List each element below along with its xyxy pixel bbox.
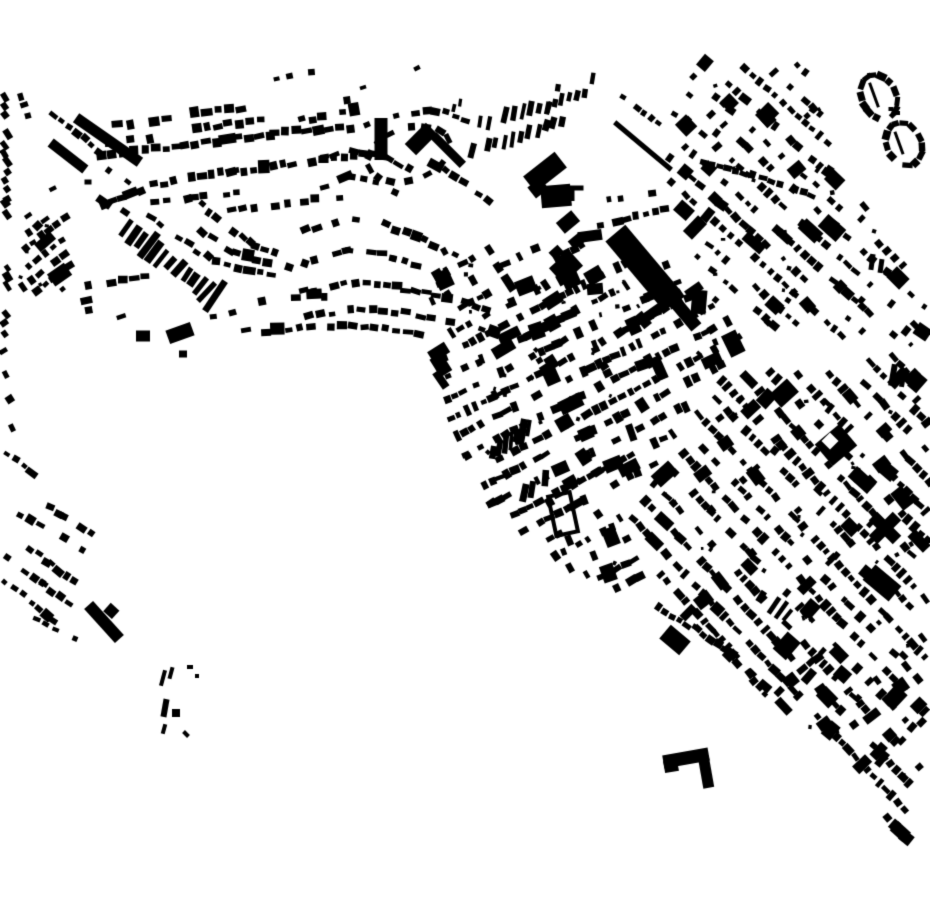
building-footprints-canvas — [0, 0, 930, 924]
figure-ground-map — [0, 0, 930, 924]
